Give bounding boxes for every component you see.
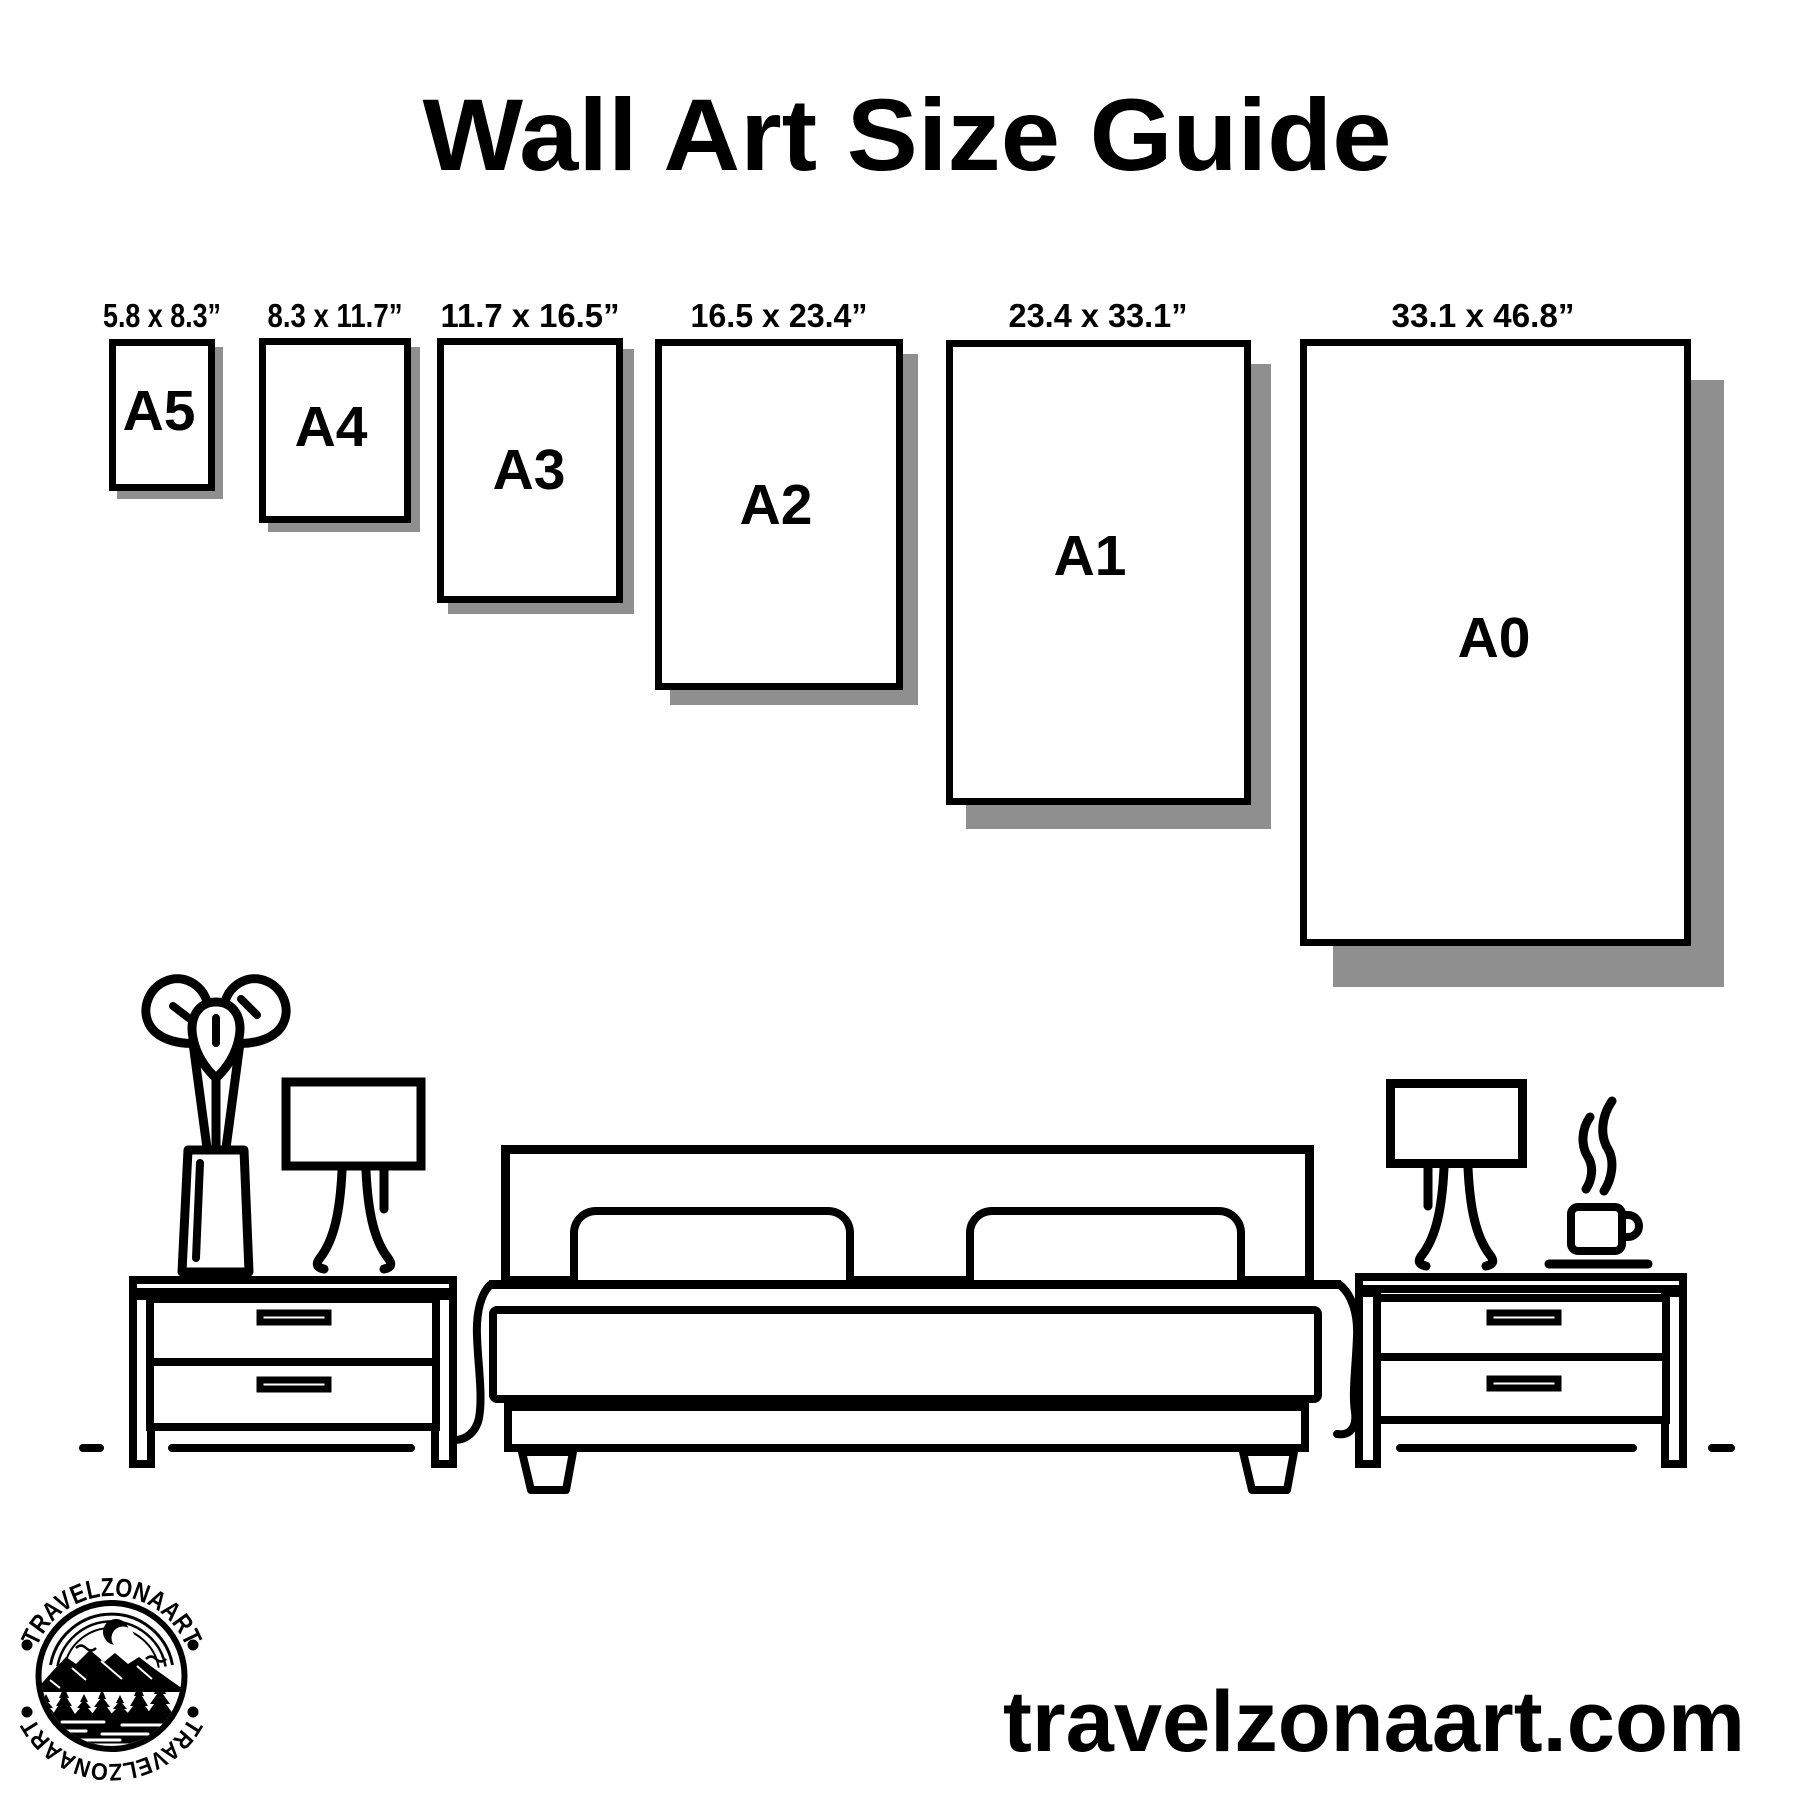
svg-text:11.7 x 16.5”: 11.7 x 16.5” <box>441 297 620 334</box>
svg-text:16.5 x 23.4”: 16.5 x 23.4” <box>691 297 868 334</box>
svg-text:33.1 x 46.8”: 33.1 x 46.8” <box>1392 297 1575 334</box>
svg-text:Wall Art Size Guide: Wall Art Size Guide <box>423 78 1392 192</box>
svg-text:23.4 x 33.1”: 23.4 x 33.1” <box>1009 297 1188 334</box>
svg-text:8.3 x 11.7”: 8.3 x 11.7” <box>268 297 403 334</box>
svg-text:A0: A0 <box>1458 606 1531 670</box>
svg-text:A2: A2 <box>740 473 813 537</box>
svg-text:5.8 x 8.3”: 5.8 x 8.3” <box>103 297 221 334</box>
svg-text:A1: A1 <box>1054 524 1127 588</box>
svg-text:travelzonaart.com: travelzonaart.com <box>1003 1674 1745 1770</box>
svg-text:A3: A3 <box>493 438 566 502</box>
svg-text:A4: A4 <box>295 395 368 459</box>
svg-text:A5: A5 <box>123 379 196 443</box>
